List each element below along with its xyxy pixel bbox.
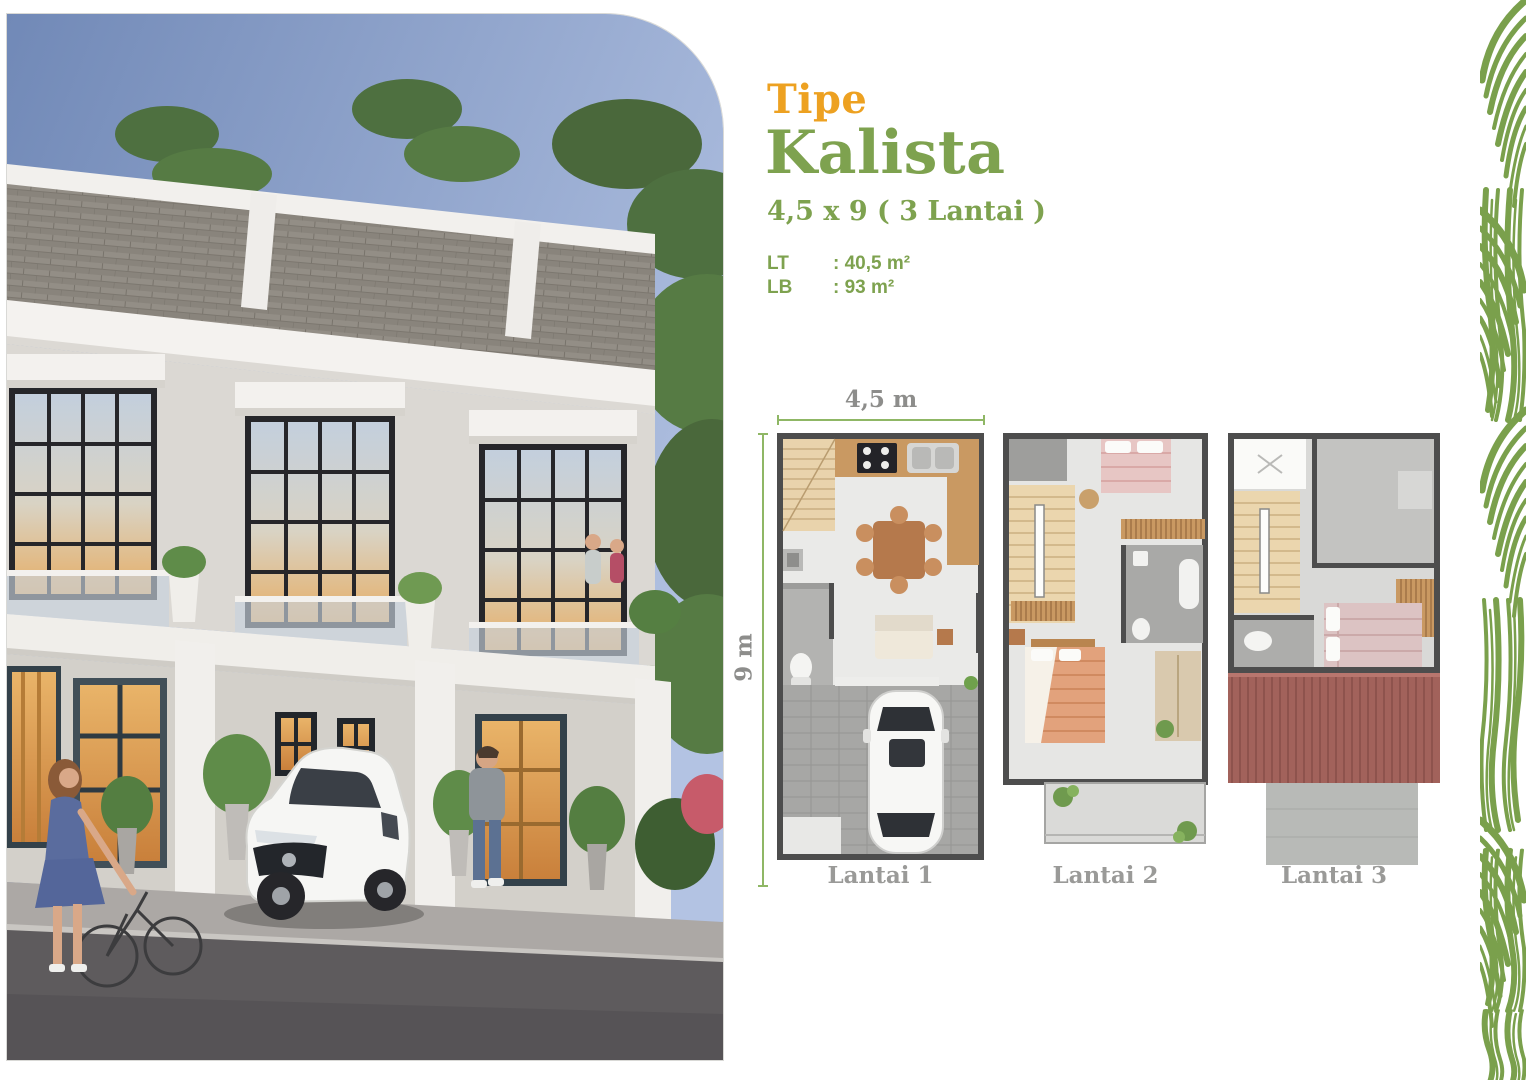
width-dimension-line: [777, 419, 985, 421]
building-area-label: LB: [767, 276, 833, 300]
floor-label-lantai-1: Lantai 1: [777, 862, 984, 889]
roof-deck: [1228, 673, 1440, 783]
floor-label-lantai-2: Lantai 2: [1003, 862, 1208, 889]
floorplan-2-drawing: [1003, 433, 1208, 847]
land-area-value: : 40,5 m²: [833, 252, 910, 276]
floorplan-lantai-2: [1003, 433, 1208, 847]
land-area-label: LT: [767, 252, 833, 276]
height-dimension-label: 9 m: [731, 628, 758, 688]
house-render-illustration: [7, 14, 723, 1060]
floor-label-lantai-3: Lantai 3: [1228, 862, 1440, 889]
land-area-row: LT : 40,5 m²: [767, 252, 967, 276]
leaf-pattern-decoration: [1480, 0, 1526, 1080]
floorplan-3-drawing: [1228, 433, 1440, 868]
leaf-pattern-icon: [1480, 0, 1526, 1080]
width-dimension: 4,5 m: [777, 386, 985, 421]
height-dimension-line: [762, 433, 764, 887]
building-area-row: LB : 93 m²: [767, 276, 967, 300]
type-dimensions: 4,5 x 9 ( 3 Lantai ): [767, 196, 1046, 227]
area-details: LT : 40,5 m² LB : 93 m²: [767, 252, 967, 300]
type-eyebrow: Tipe: [767, 76, 867, 123]
brochure-page: Tipe Kalista 4,5 x 9 ( 3 Lantai ) LT : 4…: [0, 0, 1526, 1080]
floorplan-lantai-1: [777, 433, 984, 860]
type-name: Kalista: [765, 118, 1005, 188]
building-area-value: : 93 m²: [833, 276, 894, 300]
floorplan-lantai-3: [1228, 433, 1440, 868]
house-photo: [7, 14, 723, 1060]
car-top-view: [863, 691, 949, 853]
width-dimension-label: 4,5 m: [777, 386, 985, 413]
floorplan-1-drawing: [777, 433, 984, 860]
